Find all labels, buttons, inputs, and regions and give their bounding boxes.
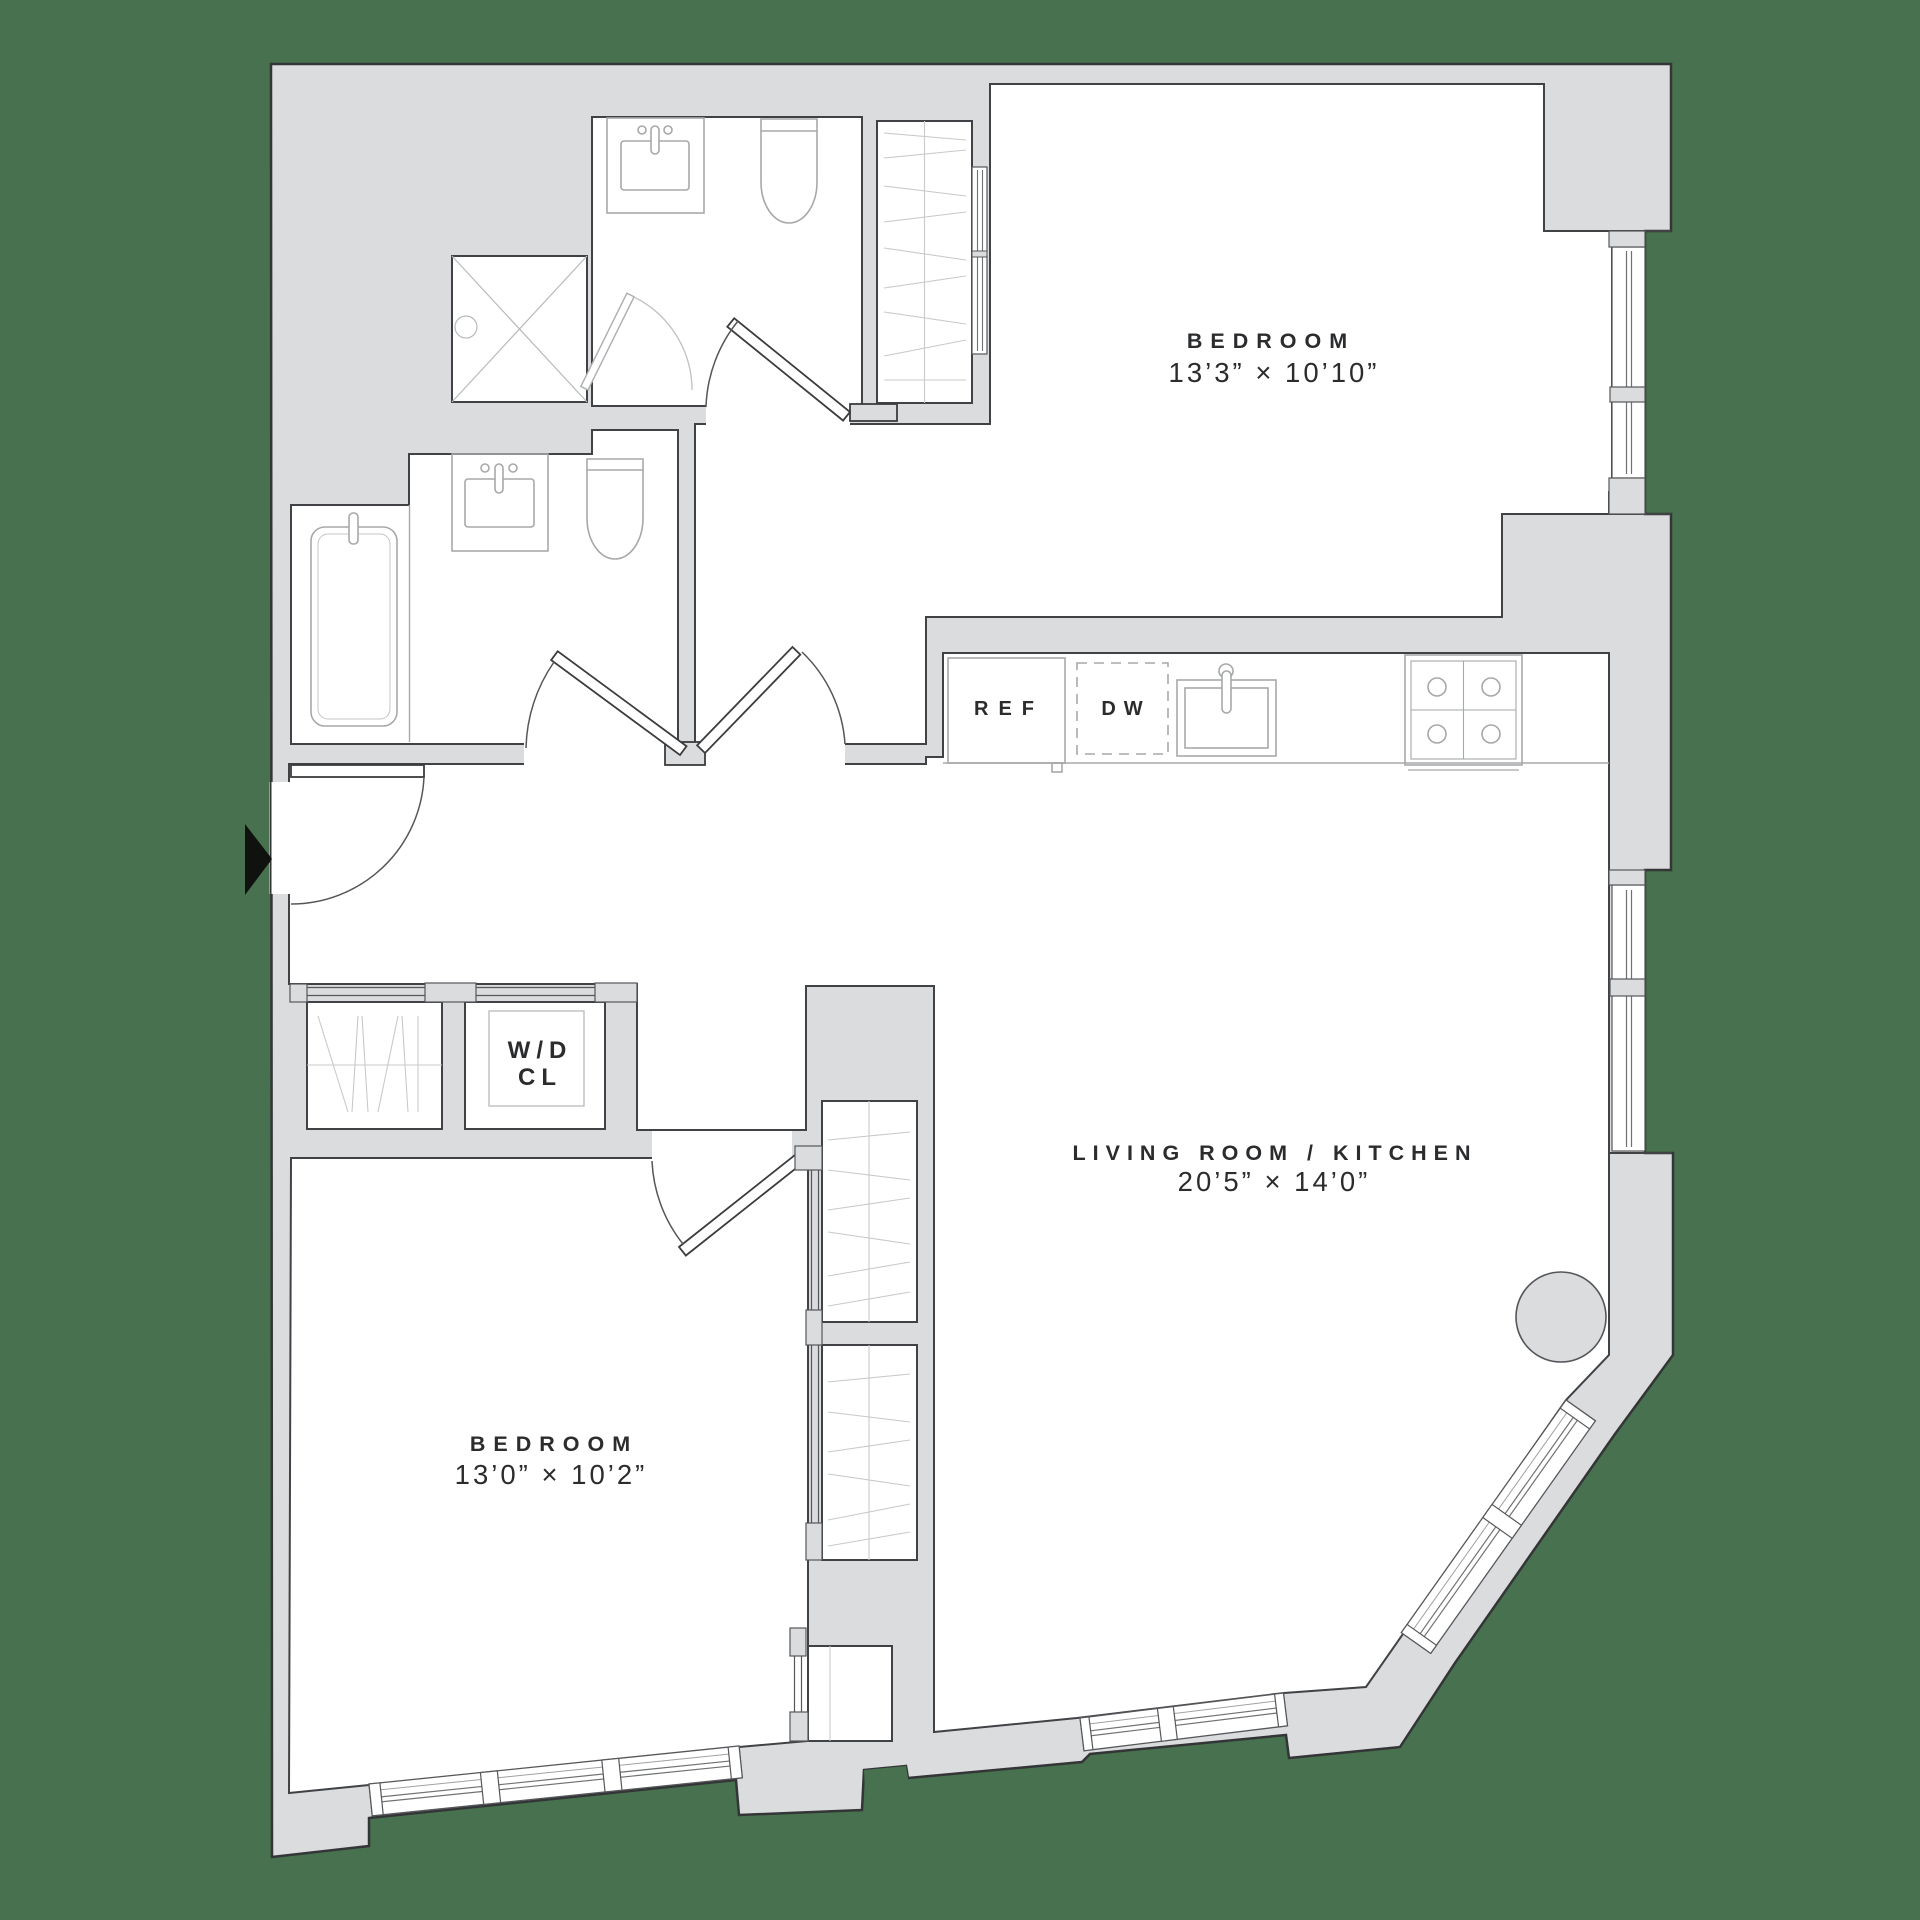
svg-text:13’0” × 10’2”: 13’0” × 10’2” — [455, 1459, 648, 1490]
svg-text:REF: REF — [974, 698, 1044, 720]
svg-text:13’3” × 10’10”: 13’3” × 10’10” — [1169, 357, 1380, 388]
svg-text:DW: DW — [1101, 698, 1150, 720]
svg-text:CL: CL — [518, 1064, 562, 1091]
svg-text:BEDROOM: BEDROOM — [1187, 329, 1355, 353]
svg-text:BEDROOM: BEDROOM — [470, 1432, 638, 1456]
svg-text:W/D: W/D — [508, 1037, 573, 1064]
svg-text:LIVING ROOM / KITCHEN: LIVING ROOM / KITCHEN — [1073, 1141, 1478, 1165]
svg-text:20’5” × 14’0”: 20’5” × 14’0” — [1178, 1166, 1371, 1197]
